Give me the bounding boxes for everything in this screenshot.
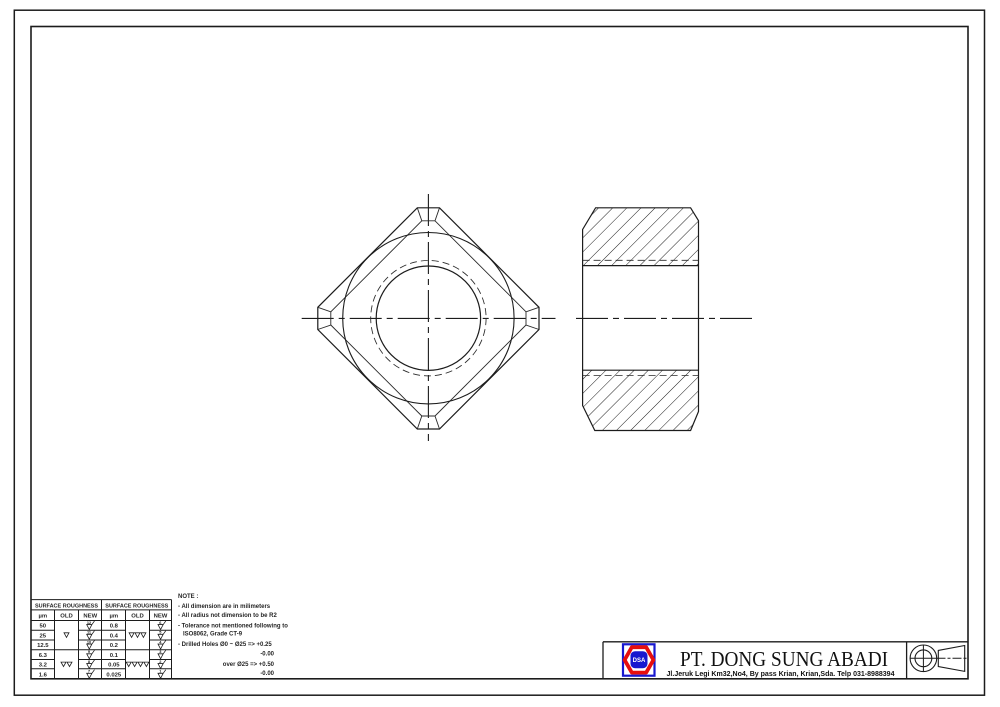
svg-text:µm: µm: [38, 613, 47, 619]
svg-text:OLD: OLD: [131, 613, 143, 619]
svg-text:NEW: NEW: [154, 613, 168, 619]
svg-text:0.1: 0.1: [110, 653, 119, 659]
svg-text:0.025: 0.025: [106, 672, 121, 678]
svg-text:7: 7: [88, 669, 90, 674]
svg-text:25: 25: [40, 633, 47, 639]
svg-text:- Tolerance not mentioned foll: - Tolerance not mentioned following to: [178, 624, 288, 630]
svg-text:µm: µm: [109, 613, 118, 619]
svg-text:3.2: 3.2: [39, 663, 48, 669]
svg-text:over Ø25 => +0.50: over Ø25 => +0.50: [223, 662, 275, 668]
svg-text:0.4: 0.4: [110, 633, 119, 639]
svg-text:SURFACE ROUGHNESS: SURFACE ROUGHNESS: [35, 603, 98, 609]
svg-text:10: 10: [87, 639, 91, 644]
svg-text:1.6: 1.6: [39, 672, 48, 678]
svg-text:12.5: 12.5: [37, 643, 49, 649]
svg-text:6.3: 6.3: [39, 653, 48, 659]
svg-text:- Drilled Holes Ø0 ~ Ø25 => +0: - Drilled Holes Ø0 ~ Ø25 => +0.25: [178, 642, 272, 648]
svg-text:- All dimension are in milimet: - All dimension are in milimeters: [178, 604, 271, 610]
svg-text:-0.00: -0.00: [260, 671, 274, 677]
svg-text:NOTE :: NOTE :: [178, 594, 198, 600]
svg-text:DSA: DSA: [633, 658, 646, 664]
svg-text:OLD: OLD: [60, 613, 72, 619]
svg-text:0.05: 0.05: [108, 663, 120, 669]
svg-text:-0.00: -0.00: [260, 651, 274, 657]
svg-text:0.8: 0.8: [110, 624, 119, 630]
svg-text:SURFACE ROUGHNESS: SURFACE ROUGHNESS: [105, 603, 168, 609]
svg-text:NEW: NEW: [83, 613, 97, 619]
svg-text:Jl.Jeruk Legi Km32,No4, By pas: Jl.Jeruk Legi Km32,No4, By pass Krian, K…: [667, 669, 895, 678]
svg-text:- All radius not dimension to: - All radius not dimension to be R2: [178, 613, 277, 619]
svg-text:ISO8062, Grade CT-9: ISO8062, Grade CT-9: [183, 632, 243, 638]
svg-text:50: 50: [40, 624, 47, 630]
svg-text:0.2: 0.2: [110, 643, 119, 649]
svg-text:PT. DONG SUNG ABADI: PT. DONG SUNG ABADI: [680, 647, 888, 671]
